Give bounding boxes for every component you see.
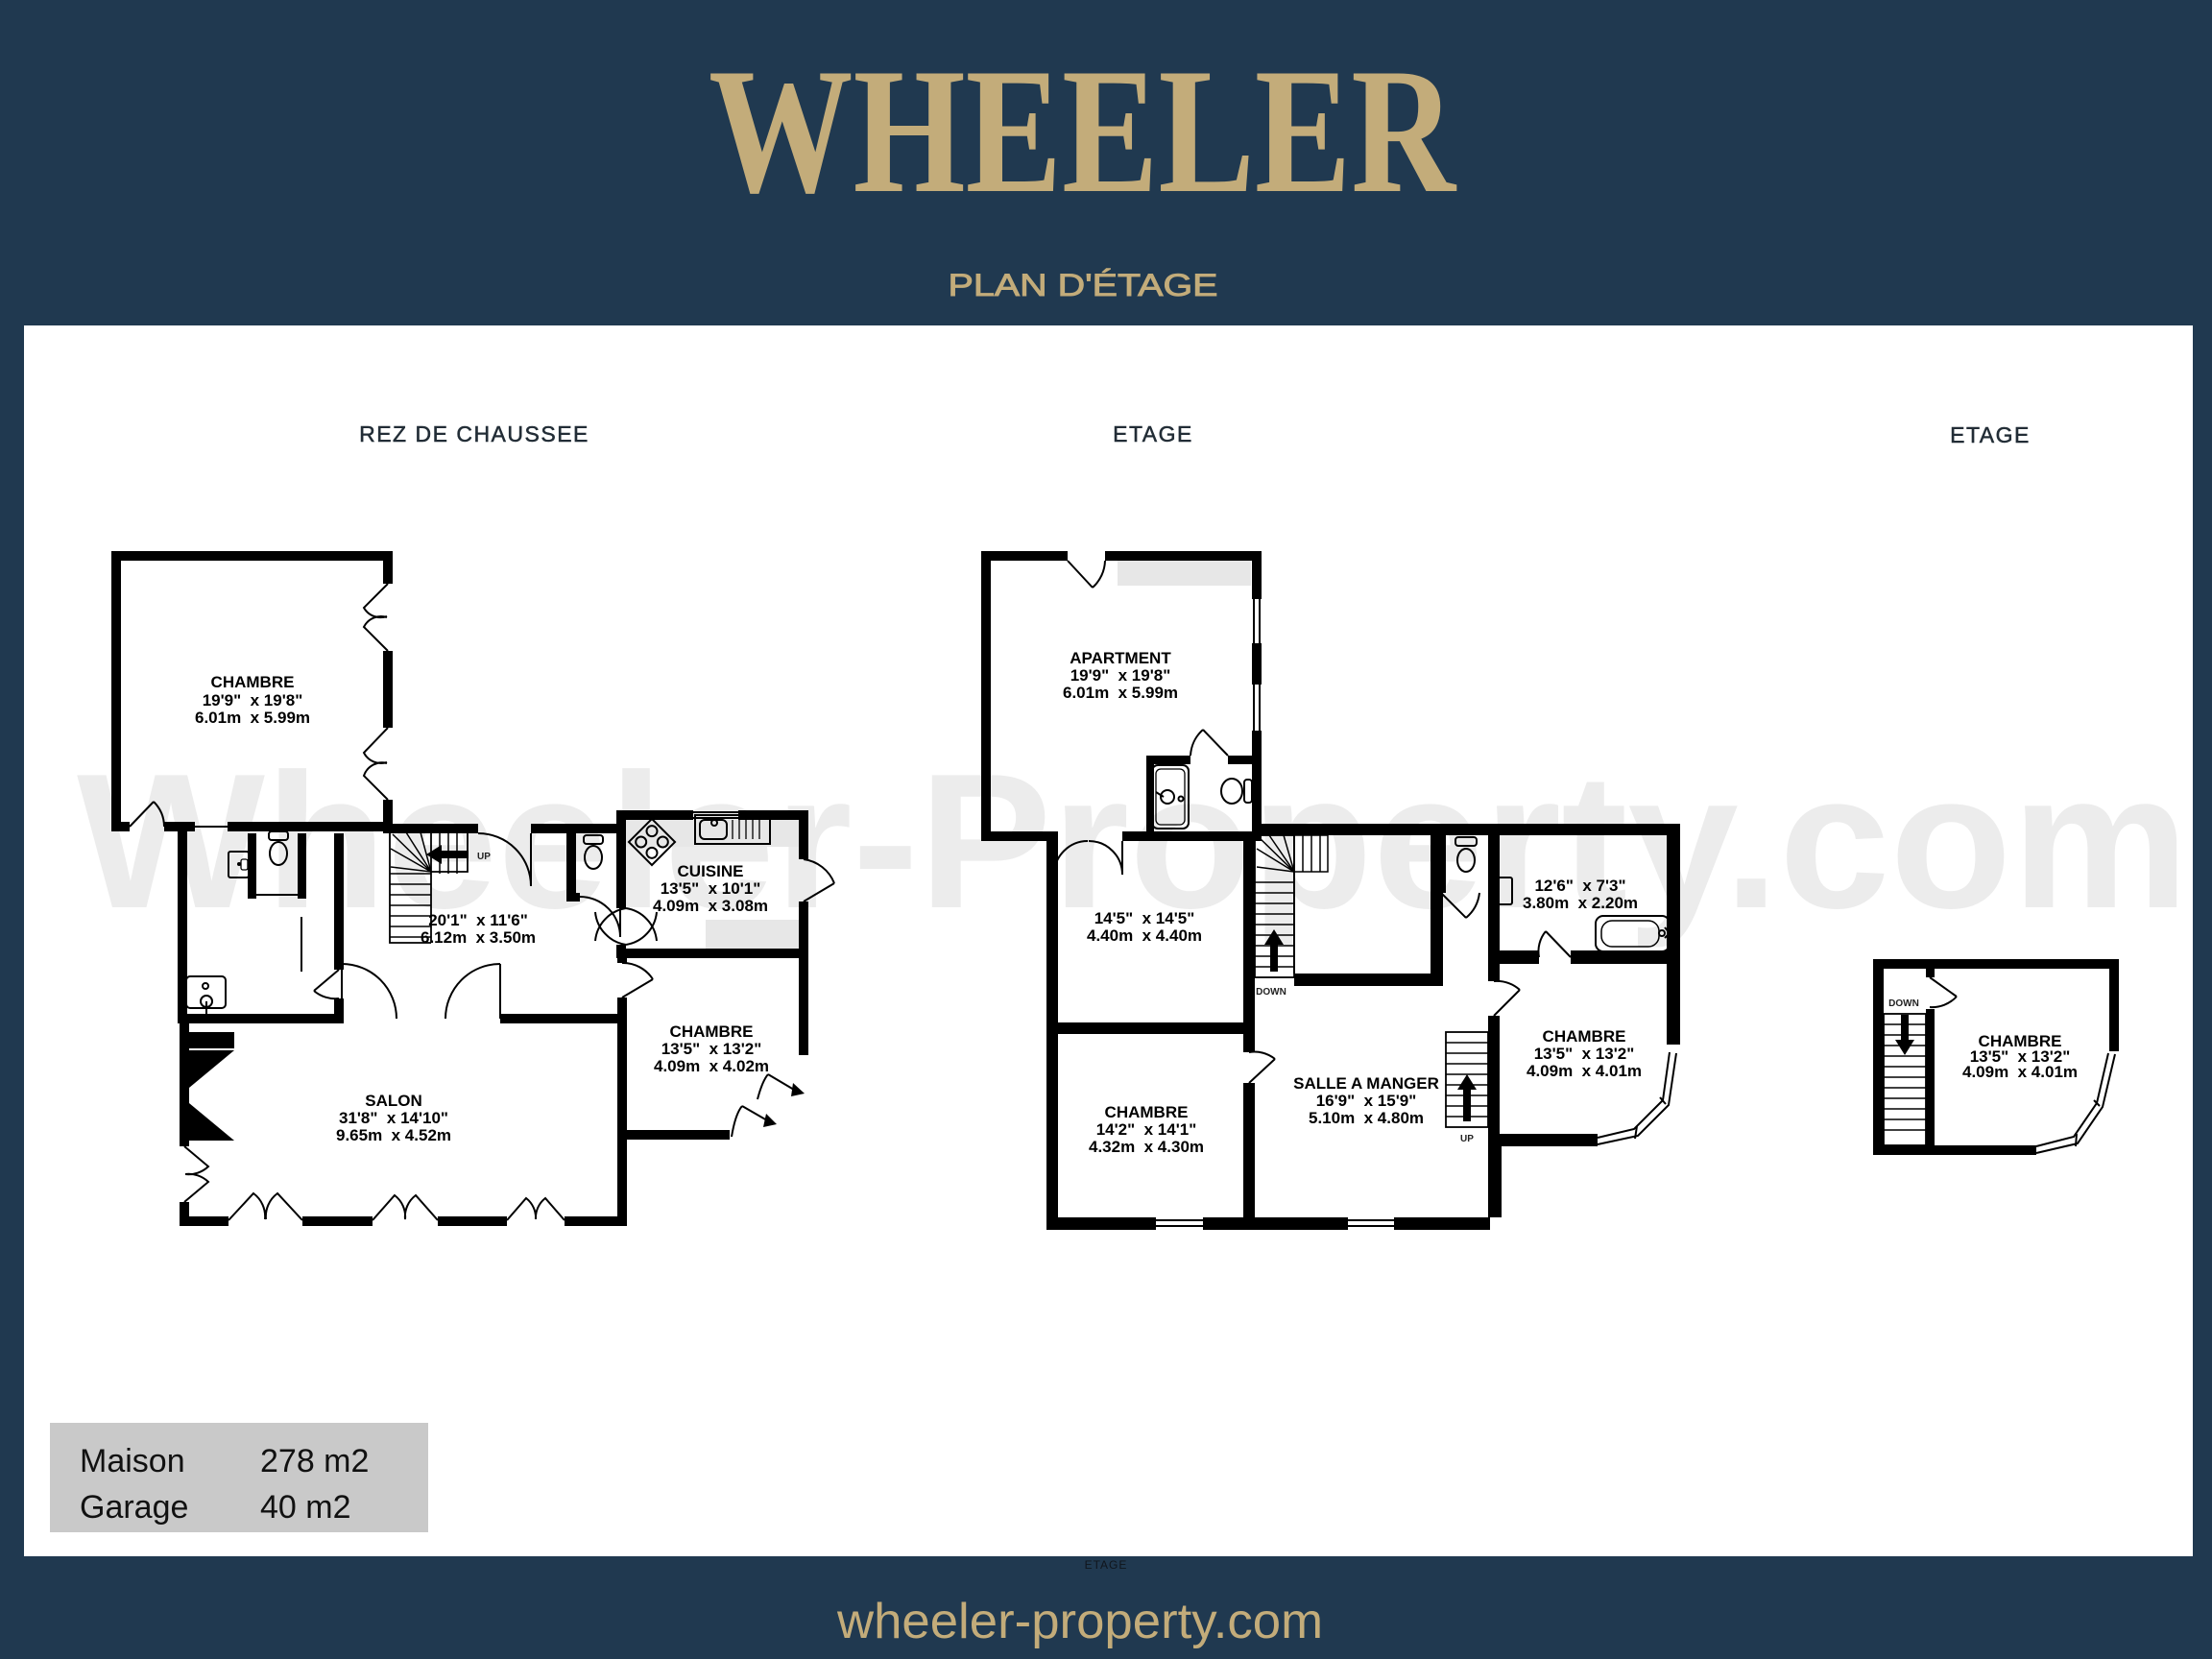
svg-text:REZ DE CHAUSSEE: REZ DE CHAUSSEE bbox=[359, 421, 589, 446]
svg-text:UP: UP bbox=[1460, 1134, 1474, 1144]
svg-text:278 m2: 278 m2 bbox=[260, 1443, 369, 1479]
svg-text:3.80m x 2.20m: 3.80m x 2.20m bbox=[1523, 894, 1638, 912]
svg-text:6.01m x 5.99m: 6.01m x 5.99m bbox=[1063, 684, 1178, 702]
svg-text:4.09m x 4.01m: 4.09m x 4.01m bbox=[1527, 1062, 1642, 1080]
svg-text:13'5" x 10'1": 13'5" x 10'1" bbox=[661, 879, 761, 898]
svg-text:16'9" x 15'9": 16'9" x 15'9" bbox=[1316, 1092, 1417, 1110]
svg-text:ETAGE: ETAGE bbox=[1085, 1558, 1128, 1572]
svg-text:DOWN: DOWN bbox=[1888, 998, 1919, 1009]
svg-text:ETAGE: ETAGE bbox=[1950, 422, 2031, 447]
svg-text:12'6" x 7'3": 12'6" x 7'3" bbox=[1534, 877, 1625, 895]
svg-text:SALON: SALON bbox=[365, 1092, 422, 1110]
svg-text:13'5" x 13'2": 13'5" x 13'2" bbox=[1534, 1045, 1635, 1063]
svg-text:9.65m x 4.52m: 9.65m x 4.52m bbox=[336, 1126, 451, 1144]
svg-text:4.09m x 3.08m: 4.09m x 3.08m bbox=[653, 897, 768, 915]
svg-text:APARTMENT: APARTMENT bbox=[1070, 649, 1171, 667]
svg-text:CUISINE: CUISINE bbox=[678, 862, 744, 880]
svg-text:14'2" x 14'1": 14'2" x 14'1" bbox=[1096, 1120, 1197, 1139]
svg-text:CHAMBRE: CHAMBRE bbox=[211, 673, 295, 691]
svg-text:14'5" x 14'5": 14'5" x 14'5" bbox=[1094, 909, 1195, 927]
svg-text:DOWN: DOWN bbox=[1256, 987, 1286, 998]
svg-text:CHAMBRE: CHAMBRE bbox=[1543, 1027, 1626, 1046]
svg-text:40 m2: 40 m2 bbox=[260, 1489, 351, 1526]
svg-text:4.40m x 4.40m: 4.40m x 4.40m bbox=[1087, 926, 1202, 945]
svg-text:6.12m x 3.50m: 6.12m x 3.50m bbox=[421, 928, 536, 947]
svg-text:31'8" x 14'10": 31'8" x 14'10" bbox=[339, 1109, 448, 1127]
svg-text:SALLE A MANGER: SALLE A MANGER bbox=[1293, 1074, 1439, 1093]
svg-text:CHAMBRE: CHAMBRE bbox=[670, 1022, 754, 1041]
svg-text:20'1" x 11'6": 20'1" x 11'6" bbox=[428, 911, 528, 929]
svg-text:19'9" x 19'8": 19'9" x 19'8" bbox=[1070, 666, 1171, 685]
svg-text:wheeler-property.com: wheeler-property.com bbox=[836, 1594, 1323, 1649]
svg-text:4.32m x 4.30m: 4.32m x 4.30m bbox=[1089, 1138, 1204, 1156]
svg-text:13'5" x 13'2": 13'5" x 13'2" bbox=[661, 1040, 762, 1058]
svg-text:WHEELER: WHEELER bbox=[709, 32, 1457, 230]
svg-text:4.09m x 4.01m: 4.09m x 4.01m bbox=[1962, 1063, 2078, 1081]
svg-text:19'9" x 19'8": 19'9" x 19'8" bbox=[203, 691, 303, 709]
svg-text:4.09m x 4.02m: 4.09m x 4.02m bbox=[654, 1057, 769, 1075]
svg-text:CHAMBRE: CHAMBRE bbox=[1105, 1103, 1189, 1121]
svg-text:5.10m x 4.80m: 5.10m x 4.80m bbox=[1309, 1109, 1424, 1127]
svg-text:Garage: Garage bbox=[80, 1489, 188, 1526]
svg-text:6.01m x 5.99m: 6.01m x 5.99m bbox=[195, 709, 310, 727]
svg-text:ETAGE: ETAGE bbox=[1113, 421, 1193, 446]
svg-text:UP: UP bbox=[477, 852, 491, 862]
svg-text:Maison: Maison bbox=[80, 1443, 185, 1479]
svg-text:PLAN D'ÉTAGE: PLAN D'ÉTAGE bbox=[949, 268, 1218, 302]
